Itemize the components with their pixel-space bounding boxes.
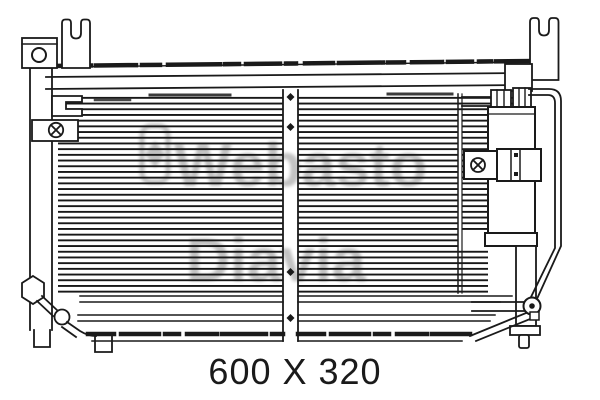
right-mounting-foot (510, 326, 540, 335)
mounting-bracket-top-left (22, 38, 57, 68)
fin-field-right (298, 94, 458, 293)
fitting-stub (530, 312, 539, 320)
bracket-base-block (505, 64, 532, 91)
condenser-technical-drawing: Webasto Diavia (0, 0, 600, 400)
bracket-hole (32, 48, 46, 62)
drier-union-right (513, 88, 531, 109)
pressure-switch-block (497, 149, 541, 181)
fin-field-left (58, 94, 283, 293)
left-mounting-foot (34, 330, 50, 347)
inlet-hex-nut-icon (22, 276, 44, 304)
catalog-drawing-page: Webasto Diavia (0, 0, 600, 400)
dimension-label: 600 X 320 (208, 351, 381, 392)
foot-locating-pin (519, 335, 529, 348)
drier-bottom-cap (485, 233, 537, 246)
